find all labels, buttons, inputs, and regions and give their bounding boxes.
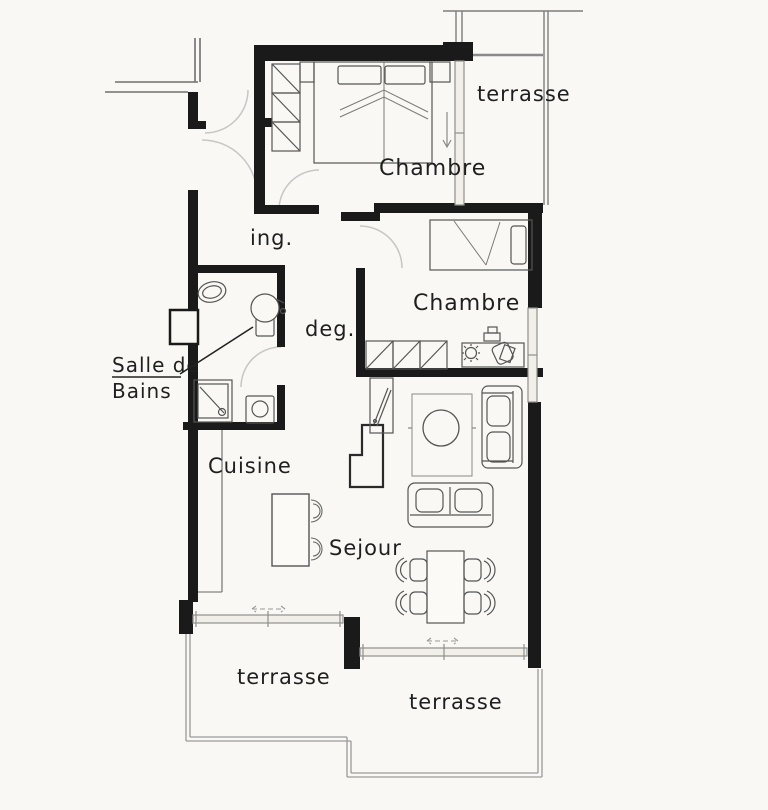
desk-chair xyxy=(491,341,514,365)
rug xyxy=(412,394,472,476)
washing-machine xyxy=(246,396,274,423)
room-label-living-room: Sejour xyxy=(329,536,402,560)
wall-east-lower xyxy=(528,402,541,668)
wall-pillar-bottom-left xyxy=(179,600,193,634)
bar-stool xyxy=(311,538,322,560)
corridor-door-arc xyxy=(202,140,257,195)
bathroom-fixtures xyxy=(194,279,286,423)
wall-jamb-entry xyxy=(188,121,206,129)
floor-plan-page: terrasse Chambre ing. Chambre deg. Salle… xyxy=(0,0,768,810)
double-bed xyxy=(314,62,432,163)
shower xyxy=(194,380,232,422)
room-label-bathroom-line2: Bains xyxy=(112,379,172,403)
room-label-bedroom-middle: Chambre xyxy=(413,291,520,316)
desk-plant xyxy=(466,348,477,359)
room-label-terrace-top: terrasse xyxy=(477,82,571,106)
floor-plan-drawing xyxy=(0,0,768,810)
room-label-bedroom-top: Chambre xyxy=(379,156,486,181)
wardrobe-bedroom-top xyxy=(272,64,300,151)
window-kitchen-terrace-door xyxy=(193,611,343,627)
nightstand-right xyxy=(430,62,450,82)
bottom-right-terrace-boundary xyxy=(347,669,542,777)
room-label-kitchen: Cuisine xyxy=(208,454,292,478)
wall-pillar-bottom-middle xyxy=(344,617,360,669)
walls xyxy=(179,42,543,669)
window-bedroom-middle xyxy=(528,308,537,402)
bathroom-door-arc xyxy=(241,347,281,387)
door-arcs xyxy=(202,90,402,387)
bedroom-middle-door-arc xyxy=(360,226,402,268)
wall-east-upper xyxy=(528,203,542,308)
wall-bedroom-middle-west xyxy=(356,268,365,372)
wall-hall-north xyxy=(341,212,380,221)
direction-arrow xyxy=(443,112,451,147)
bar-stool xyxy=(311,500,322,522)
sofa xyxy=(482,386,522,468)
dining-chair xyxy=(396,558,427,582)
wardrobe-bedroom-middle xyxy=(366,341,447,369)
wall-bedroom-top-north xyxy=(258,45,445,61)
dimension-arrow-living xyxy=(427,638,458,644)
landing-walls xyxy=(105,38,200,92)
wall-pillar-top-right xyxy=(443,42,473,61)
nightstand-left xyxy=(300,62,314,82)
dining-table xyxy=(427,551,464,623)
window-bedroom-top-terrace xyxy=(455,61,464,205)
dining-chair xyxy=(464,558,495,582)
wall-bedroom-top-west xyxy=(254,45,265,213)
toilet xyxy=(196,279,228,305)
dining-chair xyxy=(396,591,427,615)
wall-bathroom-north xyxy=(193,265,285,273)
bedroom-top-door-arc xyxy=(279,170,319,210)
kitchen-island xyxy=(272,494,309,566)
desk xyxy=(462,327,524,367)
wall-jamb-corridor xyxy=(254,118,272,127)
room-label-terrace-bottom-right: terrasse xyxy=(409,690,503,714)
wall-duct-niche xyxy=(170,310,198,344)
dining-chair xyxy=(464,591,495,615)
living-room-furniture xyxy=(370,378,522,623)
terrace-step-boundary xyxy=(347,737,351,777)
single-bed xyxy=(430,220,532,270)
entry-door-arc xyxy=(205,90,248,133)
bedroom-top-furniture xyxy=(272,62,451,163)
coffee-table xyxy=(423,410,459,446)
wall-bedroom-top-south xyxy=(254,205,319,214)
room-label-bathroom-line1: Salle de xyxy=(112,353,200,377)
loveseat xyxy=(408,483,493,527)
dining-table-set xyxy=(396,551,495,623)
room-label-hallway: deg. xyxy=(305,317,355,341)
window-living-terrace-door xyxy=(360,644,527,660)
wall-west-lower xyxy=(188,430,198,602)
room-label-entry: ing. xyxy=(250,226,293,250)
wall-step-stub xyxy=(350,425,383,487)
room-label-terrace-bottom-left: terrasse xyxy=(237,665,331,689)
desk-lamp xyxy=(484,333,500,341)
